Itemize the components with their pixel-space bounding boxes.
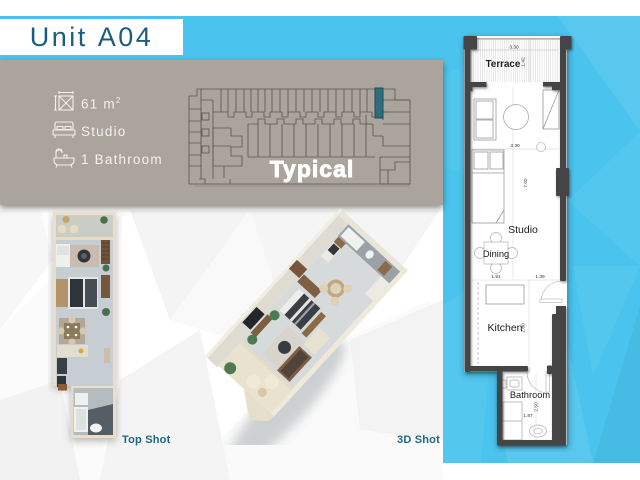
svg-text:1.87: 1.87	[523, 413, 533, 419]
svg-text:Dining: Dining	[483, 249, 509, 259]
svg-text:1.91: 1.91	[491, 274, 501, 280]
svg-text:7.02: 7.02	[523, 178, 529, 188]
svg-text:3.30: 3.30	[510, 143, 520, 149]
svg-text:Terrace: Terrace	[486, 59, 521, 70]
svg-text:1.42: 1.42	[521, 57, 527, 67]
svg-text:Kitchen: Kitchen	[487, 322, 522, 334]
svg-text:2.50: 2.50	[534, 402, 540, 412]
svg-text:3.30: 3.30	[509, 45, 519, 51]
svg-text:1.39: 1.39	[535, 274, 545, 280]
svg-text:Studio: Studio	[508, 224, 538, 236]
svg-text:2.80: 2.80	[521, 323, 527, 333]
svg-text:Typical: Typical	[270, 156, 355, 182]
svg-text:Bathroom: Bathroom	[510, 390, 551, 400]
